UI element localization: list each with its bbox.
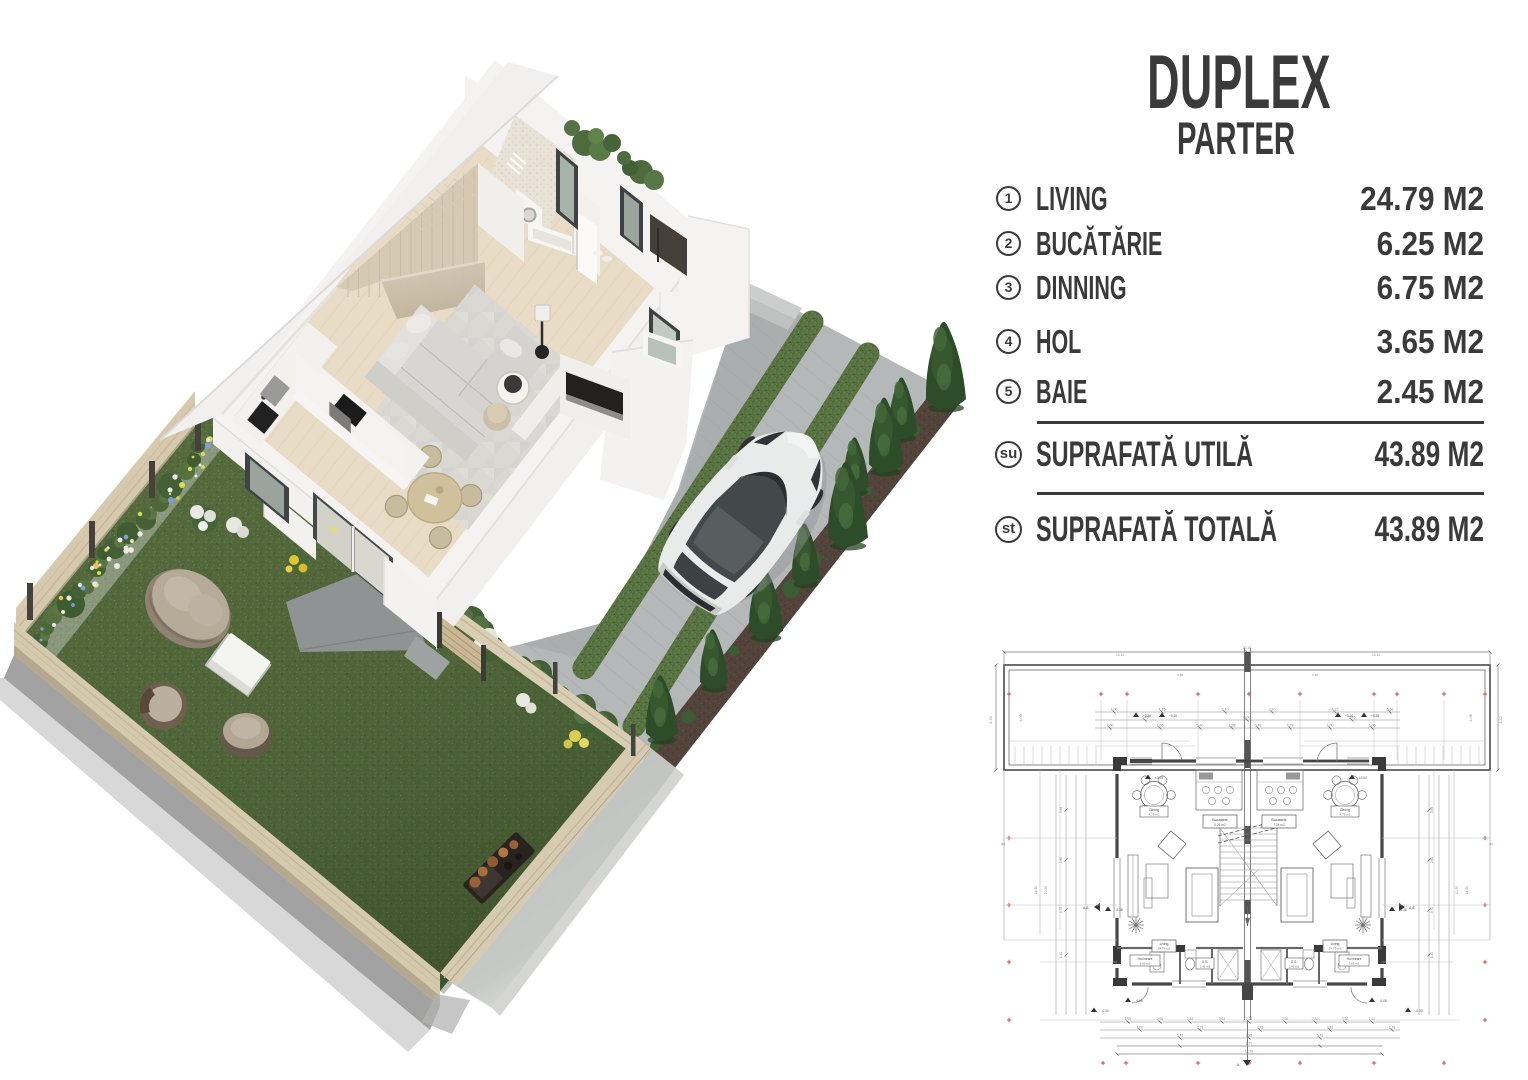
svg-text:14.80: 14.80 — [1465, 886, 1469, 895]
svg-text:2.45 m2: 2.45 m2 — [1289, 965, 1300, 969]
svg-text:1.95: 1.95 — [1125, 1017, 1132, 1021]
svg-text:1.28: 1.28 — [1229, 724, 1236, 728]
svg-text:Hol intrare: Hol intrare — [1138, 957, 1153, 961]
svg-text:0.63: 0.63 — [1219, 1017, 1226, 1021]
svg-text:Living: Living — [1331, 942, 1340, 946]
svg-text:10.30: 10.30 — [1044, 886, 1048, 895]
svg-text:6.26 m2: 6.26 m2 — [1214, 823, 1226, 827]
svg-text:0.90: 0.90 — [1157, 1017, 1164, 1021]
svg-text:2.20: 2.20 — [1246, 1017, 1253, 1021]
svg-text:2.15: 2.15 — [1257, 1026, 1264, 1030]
svg-text:0.80: 0.80 — [1312, 1017, 1319, 1021]
svg-text:2.80: 2.80 — [1059, 857, 1063, 863]
svg-text:3.65 m2: 3.65 m2 — [1140, 962, 1151, 966]
svg-text:4.75 m2: 4.75 m2 — [1149, 813, 1160, 817]
svg-text:2.10: 2.10 — [1269, 708, 1276, 712]
svg-text:1.40: 1.40 — [1059, 952, 1063, 958]
svg-text:0.80: 0.80 — [1312, 673, 1318, 677]
svg-text:A,A': A,A' — [1083, 906, 1089, 910]
svg-text:30.20: 30.20 — [1243, 646, 1252, 650]
svg-text:10.10: 10.10 — [1372, 653, 1380, 657]
svg-text:-0.30: -0.30 — [1101, 1009, 1108, 1013]
svg-text:2.80: 2.80 — [1430, 857, 1434, 863]
svg-text:Dining: Dining — [1149, 808, 1159, 812]
svg-text:(F): (F) — [1489, 842, 1493, 846]
svg-text:Hol intrare: Hol intrare — [1347, 957, 1362, 961]
svg-text:1.00: 1.00 — [1327, 724, 1334, 728]
svg-text:10.10: 10.10 — [1116, 653, 1124, 657]
svg-text:3.98: 3.98 — [1059, 807, 1063, 813]
svg-text:4.08: 4.08 — [1019, 714, 1023, 721]
svg-text:24.79 m2: 24.79 m2 — [1158, 947, 1171, 951]
svg-text:Dining: Dining — [1340, 808, 1350, 812]
svg-text:-0.08: -0.08 — [1379, 999, 1386, 1003]
svg-text:7.34 m2: 7.34 m2 — [1273, 823, 1285, 827]
svg-text:5.63: 5.63 — [1387, 708, 1394, 712]
svg-text:7.00: 7.00 — [1107, 724, 1114, 728]
svg-text:2.45 m2: 2.45 m2 — [1200, 965, 1211, 969]
svg-text:0.89: 0.89 — [1187, 1017, 1194, 1021]
svg-text:A: A — [1237, 1063, 1240, 1067]
svg-text:3.65 m2: 3.65 m2 — [1349, 962, 1360, 966]
svg-text:2.10: 2.10 — [1222, 708, 1229, 712]
svg-text:3.98: 3.98 — [1430, 807, 1434, 813]
svg-text:+0.16: +0.16 — [1169, 714, 1177, 718]
svg-text:4.15: 4.15 — [1159, 708, 1166, 712]
svg-text:0.42: 0.42 — [1255, 724, 1262, 728]
svg-text:0.95: 0.95 — [1282, 1017, 1289, 1021]
svg-text:-0.30: -0.30 — [1415, 1009, 1422, 1013]
svg-text:4.75 m2: 4.75 m2 — [1340, 813, 1351, 817]
svg-text:5.06: 5.06 — [1369, 724, 1376, 728]
svg-text:0.35: 0.35 — [1246, 1034, 1253, 1038]
svg-text:G.S.: G.S. — [1291, 960, 1297, 964]
svg-text:3.18: 3.18 — [1327, 1026, 1334, 1030]
svg-text:±0.00: ±0.00 — [1359, 776, 1367, 780]
svg-text:4.15: 4.15 — [1332, 708, 1339, 712]
svg-text:7.28: 7.28 — [1287, 724, 1294, 728]
svg-text:-0.08: -0.08 — [1135, 999, 1142, 1003]
svg-text:-0.38: -0.38 — [1115, 908, 1122, 912]
svg-text:-0.38: -0.38 — [1399, 908, 1406, 912]
svg-text:14.80: 14.80 — [1034, 886, 1038, 895]
svg-text:5.45: 5.45 — [1177, 1034, 1184, 1038]
svg-text:11.20: 11.20 — [1245, 1050, 1253, 1054]
svg-text:+0.38: +0.38 — [1143, 714, 1151, 718]
svg-text:A,A': A,A' — [1409, 906, 1415, 910]
svg-text:1.93: 1.93 — [1389, 1026, 1396, 1030]
svg-text:5.45: 5.45 — [989, 716, 993, 723]
svg-text:1.10: 1.10 — [1369, 1017, 1376, 1021]
svg-text:3.18: 3.18 — [1197, 1026, 1204, 1030]
svg-text:Bucatarie: Bucatarie — [1212, 818, 1227, 822]
svg-text:5.48: 5.48 — [1317, 1034, 1324, 1038]
svg-text:Bucatarie: Bucatarie — [1271, 818, 1286, 822]
svg-text:1.00: 1.00 — [1137, 1026, 1144, 1030]
svg-text:9.70: 9.70 — [1059, 907, 1063, 913]
svg-text:1.66: 1.66 — [1157, 724, 1164, 728]
svg-text:±0.00: ±0.00 — [1155, 776, 1163, 780]
svg-text:9.70: 9.70 — [1430, 907, 1434, 913]
svg-text:3.30: 3.30 — [1342, 1017, 1349, 1021]
svg-text:1.00: 1.00 — [1111, 708, 1118, 712]
svg-text:0.80: 0.80 — [1177, 673, 1183, 677]
svg-text:+0.38: +0.38 — [1371, 714, 1379, 718]
svg-text:G.S.: G.S. — [1202, 960, 1208, 964]
svg-text:(F): (F) — [1001, 842, 1005, 846]
svg-text:1.40: 1.40 — [1430, 952, 1434, 958]
svg-text:6.70: 6.70 — [1246, 1042, 1253, 1046]
svg-text:4.08: 4.08 — [1469, 714, 1473, 721]
svg-text:Living: Living — [1160, 942, 1169, 946]
svg-text:4.42: 4.42 — [1499, 716, 1503, 723]
svg-text:10.30: 10.30 — [1455, 886, 1459, 895]
svg-text:24.79 m2: 24.79 m2 — [1329, 947, 1342, 951]
svg-text:5.40: 5.40 — [1197, 724, 1204, 728]
svg-text:+0.16: +0.16 — [1345, 714, 1353, 718]
